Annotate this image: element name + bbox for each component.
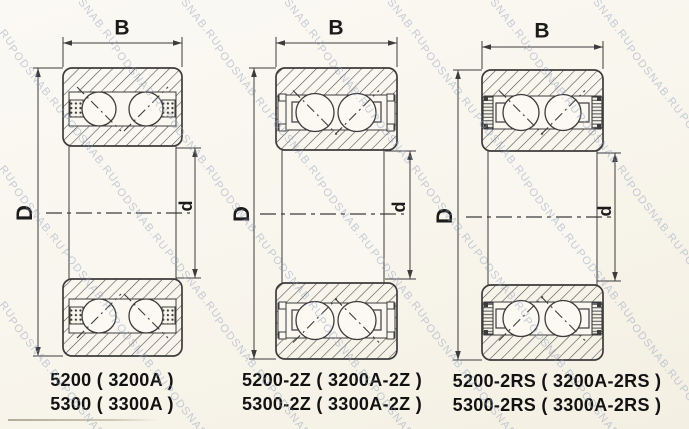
dim-label-bore-diameter-2z: d bbox=[390, 202, 408, 213]
designation-5300-open: 5300 ( 3300A ) bbox=[50, 395, 174, 413]
dim-label-bore-diameter-2rs: d bbox=[596, 206, 614, 217]
designation-5200-2rs: 5200-2RS ( 3200A-2RS ) bbox=[453, 372, 662, 390]
bearing-catalog-figure: B D d B D d B D d 5200 ( 3200A ) 5300 ( … bbox=[0, 0, 689, 429]
bearing-diagram-open bbox=[33, 37, 201, 356]
dim-label-outer-diameter-2z: D bbox=[231, 206, 253, 222]
designation-5200-2z: 5200-2Z ( 3200A-2Z ) bbox=[242, 371, 422, 389]
dim-label-width-b-2rs: B bbox=[534, 21, 549, 42]
bearing-diagram-2rs bbox=[453, 41, 621, 360]
designation-5300-2z: 5300-2Z ( 3300A-2Z ) bbox=[242, 395, 422, 413]
dim-label-width-b-2z: B bbox=[328, 18, 343, 39]
scan-edge-line bbox=[8, 419, 158, 421]
dim-label-outer-diameter-open: D bbox=[14, 205, 36, 221]
bearing-diagram-2z bbox=[249, 37, 416, 359]
designation-5300-2rs: 5300-2RS ( 3300A-2RS ) bbox=[453, 396, 662, 414]
dim-label-outer-diameter-2rs: D bbox=[434, 208, 456, 224]
dim-label-width-b-open: B bbox=[114, 18, 129, 39]
dim-label-bore-diameter-open: d bbox=[177, 201, 195, 212]
designation-5200-open: 5200 ( 3200A ) bbox=[50, 371, 174, 389]
technical-drawing-canvas bbox=[0, 0, 689, 429]
